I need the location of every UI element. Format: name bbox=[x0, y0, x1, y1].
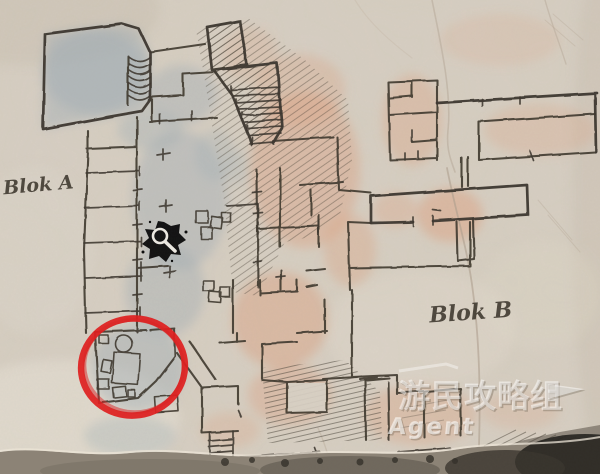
paper-grain bbox=[0, 0, 600, 474]
map-canvas: Blok A Blok B 游民攻略组 游民攻略组 Agent Agent bbox=[0, 0, 600, 474]
game-map-screenshot: Blok A Blok B 游民攻略组 游民攻略组 Agent Agent bbox=[0, 0, 600, 474]
